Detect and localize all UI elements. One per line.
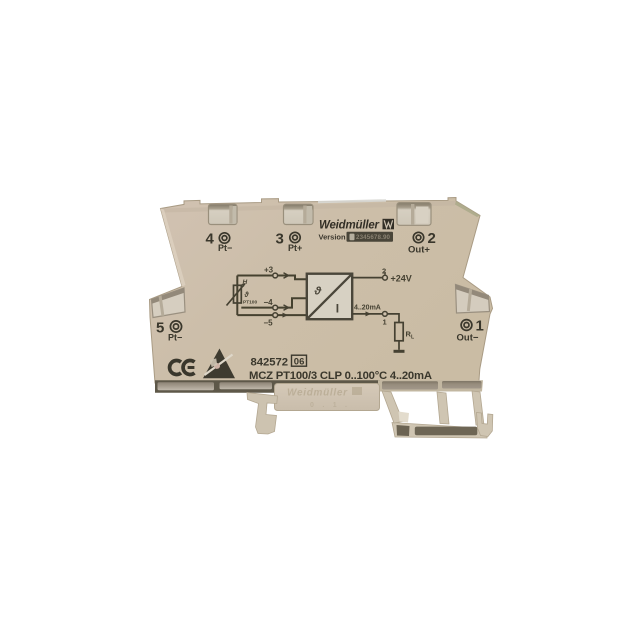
svg-text:−4: −4: [264, 298, 274, 307]
svg-text:2345678.90: 2345678.90: [356, 234, 391, 241]
svg-text:842572: 842572: [251, 357, 289, 369]
svg-text:4: 4: [206, 231, 215, 248]
svg-text:−5: −5: [264, 319, 274, 328]
svg-text:Weidmüller: Weidmüller: [287, 388, 348, 399]
svg-text:06: 06: [294, 357, 305, 368]
svg-text:Pt−: Pt−: [168, 333, 182, 343]
svg-text:ϑ: ϑ: [244, 292, 250, 299]
svg-text:I: I: [336, 302, 339, 316]
svg-text:Weidmüller: Weidmüller: [319, 220, 380, 232]
svg-text:+24V: +24V: [391, 274, 412, 284]
svg-text:PT100: PT100: [243, 300, 257, 306]
svg-text:Out+: Out+: [408, 245, 430, 256]
svg-text:+3: +3: [264, 266, 274, 275]
svg-text:1: 1: [383, 318, 387, 327]
svg-text:H: H: [243, 279, 248, 286]
svg-text:Pt+: Pt+: [288, 243, 302, 253]
svg-text:2: 2: [382, 267, 386, 276]
svg-text:Pt−: Pt−: [218, 243, 232, 253]
svg-text:ϑ: ϑ: [314, 286, 323, 298]
svg-text:Out−: Out−: [457, 333, 479, 344]
svg-text:5: 5: [156, 320, 164, 337]
svg-text:3: 3: [276, 231, 284, 248]
svg-text:4..20mA: 4..20mA: [354, 305, 381, 312]
svg-text:Version: Version: [319, 233, 347, 242]
